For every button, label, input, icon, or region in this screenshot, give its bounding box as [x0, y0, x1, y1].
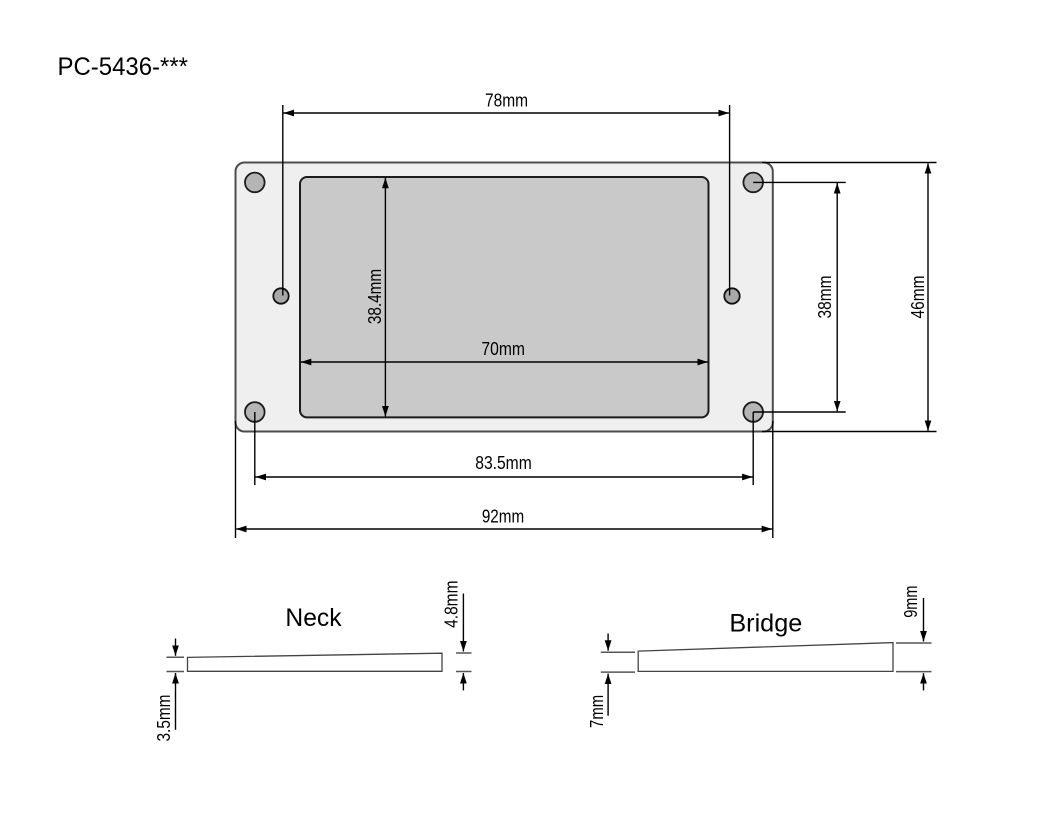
svg-text:PC-5436-***: PC-5436-*** — [58, 53, 189, 81]
svg-text:4.8mm: 4.8mm — [442, 581, 462, 628]
svg-text:9mm: 9mm — [901, 586, 921, 618]
svg-text:Bridge: Bridge — [729, 610, 802, 638]
svg-text:7mm: 7mm — [587, 695, 607, 728]
svg-text:Neck: Neck — [285, 604, 342, 632]
svg-text:46mm: 46mm — [908, 276, 928, 319]
svg-text:38.4mm: 38.4mm — [365, 269, 385, 324]
svg-text:70mm: 70mm — [481, 339, 525, 359]
svg-text:38mm: 38mm — [815, 276, 835, 319]
svg-text:83.5mm: 83.5mm — [475, 453, 532, 473]
svg-text:78mm: 78mm — [485, 90, 528, 110]
svg-text:92mm: 92mm — [482, 507, 524, 527]
svg-text:3.5mm: 3.5mm — [154, 695, 174, 742]
